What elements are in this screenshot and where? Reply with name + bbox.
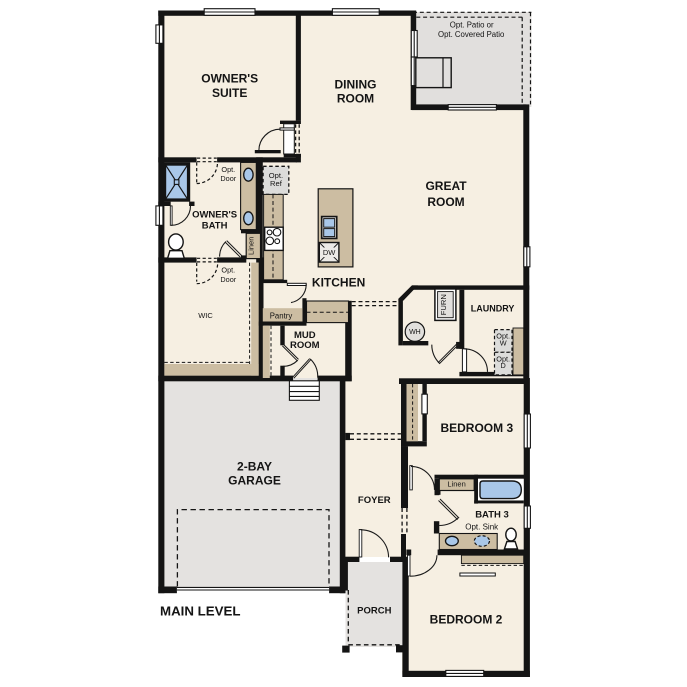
svg-text:OWNER'S: OWNER'S: [201, 71, 258, 85]
svg-text:BEDROOM 3: BEDROOM 3: [440, 421, 513, 435]
svg-text:BATH: BATH: [202, 221, 228, 232]
svg-text:Linen: Linen: [246, 237, 255, 255]
svg-text:DW: DW: [323, 248, 336, 257]
svg-text:WIC: WIC: [198, 311, 213, 320]
svg-text:MAIN LEVEL: MAIN LEVEL: [160, 603, 241, 618]
svg-text:BEDROOM 2: BEDROOM 2: [430, 612, 503, 626]
svg-text:Opt. Sink: Opt. Sink: [465, 523, 499, 532]
svg-text:KITCHEN: KITCHEN: [312, 276, 365, 290]
svg-text:FOYER: FOYER: [358, 495, 391, 506]
svg-text:FURN: FURN: [439, 294, 448, 315]
svg-text:Ref: Ref: [270, 179, 283, 188]
svg-text:ROOM: ROOM: [290, 340, 320, 351]
svg-text:Pantry: Pantry: [270, 312, 293, 321]
svg-text:Opt. Patio or: Opt. Patio or: [450, 20, 494, 29]
svg-text:WH: WH: [409, 329, 421, 336]
svg-text:PORCH: PORCH: [357, 606, 391, 617]
svg-text:Door: Door: [220, 275, 236, 284]
svg-text:DINING: DINING: [335, 77, 377, 91]
svg-text:GARAGE: GARAGE: [228, 474, 281, 488]
svg-text:D: D: [501, 361, 506, 370]
svg-text:SUITE: SUITE: [212, 86, 247, 100]
svg-text:LAUNDRY: LAUNDRY: [471, 303, 515, 313]
svg-text:Opt.: Opt.: [221, 165, 235, 174]
svg-text:Linen: Linen: [447, 480, 465, 489]
svg-text:OWNER'S: OWNER'S: [192, 210, 237, 221]
svg-text:ROOM: ROOM: [427, 195, 464, 209]
svg-text:W: W: [500, 338, 507, 347]
svg-text:BATH 3: BATH 3: [475, 510, 509, 521]
svg-text:Opt. Covered Patio: Opt. Covered Patio: [438, 30, 505, 39]
svg-text:Opt.: Opt.: [221, 266, 235, 275]
svg-text:2-BAY: 2-BAY: [237, 459, 272, 473]
svg-text:ROOM: ROOM: [337, 92, 374, 106]
svg-text:GREAT: GREAT: [425, 179, 467, 193]
svg-text:Door: Door: [220, 174, 236, 183]
